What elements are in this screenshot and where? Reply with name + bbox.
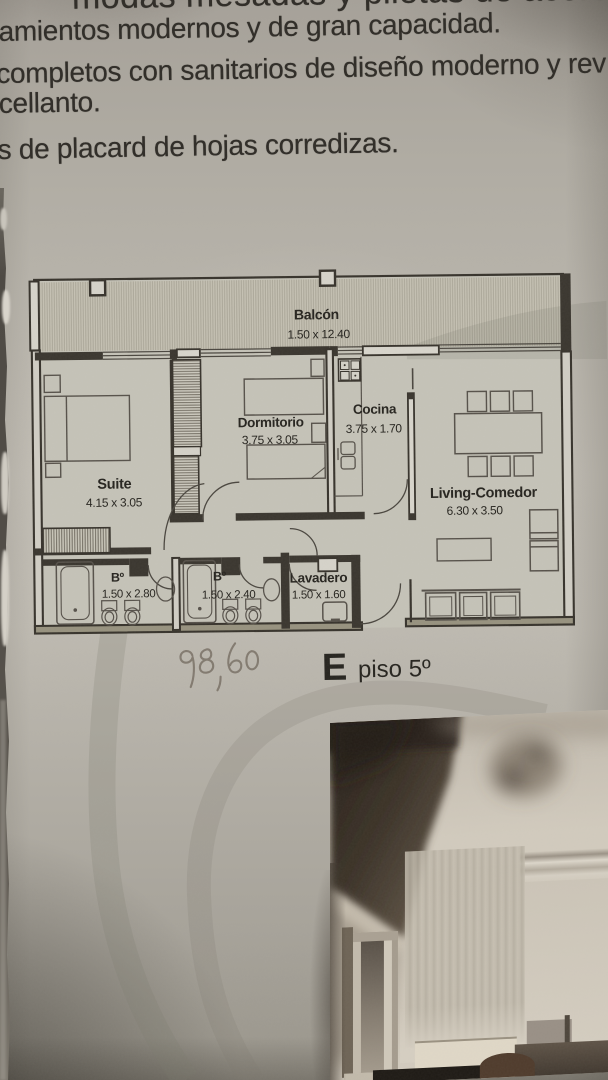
svg-text:1.50 x 2.80: 1.50 x 2.80 xyxy=(102,588,156,601)
svg-text:3.75 x 3.05: 3.75 x 3.05 xyxy=(242,433,299,448)
svg-text:1.50 x 1.60: 1.50 x 1.60 xyxy=(292,589,346,602)
svg-text:Suite: Suite xyxy=(97,476,131,492)
svg-text:6.30 x 3.50: 6.30 x 3.50 xyxy=(447,503,504,518)
svg-text:Living-Comedor: Living-Comedor xyxy=(430,485,538,502)
svg-text:Cocina: Cocina xyxy=(353,401,397,416)
svg-text:piso 5º: piso 5º xyxy=(358,655,432,683)
svg-text:4.15 x 3.05: 4.15 x 3.05 xyxy=(86,495,143,510)
svg-text:Balcón: Balcón xyxy=(294,306,339,323)
svg-text:1.50 x 12.40: 1.50 x 12.40 xyxy=(287,327,350,342)
svg-text:Bº: Bº xyxy=(213,569,227,583)
svg-text:Lavadero: Lavadero xyxy=(290,570,348,586)
svg-text:E: E xyxy=(322,647,348,689)
svg-text:3.75 x 1.70: 3.75 x 1.70 xyxy=(346,421,403,436)
svg-text:1.50 x 2.40: 1.50 x 2.40 xyxy=(202,589,256,602)
svg-text:Bº: Bº xyxy=(111,570,125,584)
svg-text:Dormitorio: Dormitorio xyxy=(238,414,304,430)
